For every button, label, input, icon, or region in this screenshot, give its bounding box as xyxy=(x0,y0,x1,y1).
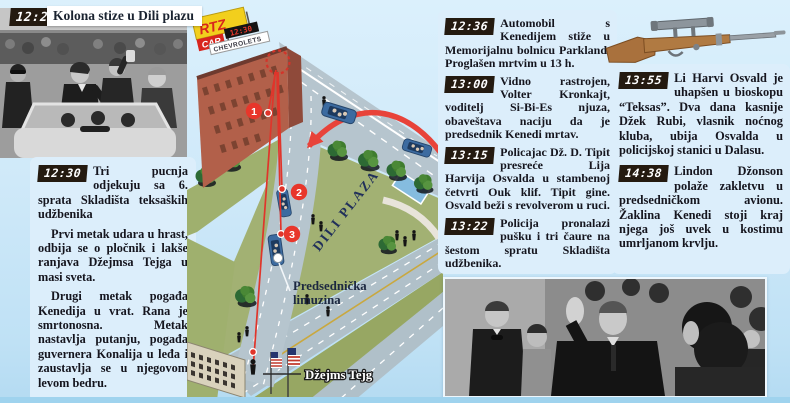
rifle-illustration xyxy=(604,2,790,66)
timestamp-badge-1230: 12:30 xyxy=(37,165,88,182)
limo-label-line1: Predsednička xyxy=(293,279,367,293)
headline: Kolona stize u Dili plazu xyxy=(47,6,202,26)
shots-lead-paragraph: 12:30Tri pucnja odjekuju sa 6. sprata Sk… xyxy=(38,164,188,222)
shot-marker-1: 1 xyxy=(251,106,257,118)
dealey-plaza-map: RTZ CAR 12:30 CHEVROLETS xyxy=(187,0,443,400)
lbj-oath-photo-art xyxy=(445,279,765,396)
timeline-entry-1300: 13:00Vidno rastrojen, Volter Kronkajt, v… xyxy=(445,75,610,142)
lbj-oath-photo xyxy=(443,277,767,398)
timeline-entry-1355: 13:55Li Harvi Osvald je uhapšen u biosko… xyxy=(619,71,783,157)
timeline-entry-1438: 14:38Lindon Džonson polaže zakletvu u pr… xyxy=(619,164,783,250)
timestamp-badge-1322: 13:22 xyxy=(444,218,495,235)
timeline-entry-1315: 13:15Policajac Dž. D. Tipit presreće Lij… xyxy=(445,146,610,213)
timeline-panel-mid: 12:36Automobil s Kenedijem stiže u Memor… xyxy=(438,10,617,274)
timestamp-badge-1438: 14:38 xyxy=(618,165,669,182)
shot-marker-3: 3 xyxy=(289,229,295,241)
motorcade-photo-art xyxy=(0,8,187,158)
timestamp-badge-1300: 13:00 xyxy=(444,76,495,93)
rifle-art xyxy=(604,2,790,66)
timestamp-badge-1315: 13:15 xyxy=(444,147,495,164)
shots-paragraph-4: Treći metak pogađa Kenedija u glavu. xyxy=(38,395,188,403)
shots-paragraph-2: Prvi metak udara u hrast, odbija se o pl… xyxy=(38,227,188,285)
limo-callout-anchor xyxy=(273,253,282,262)
timeline-entry-1236: 12:36Automobil s Kenedijem stiže u Memor… xyxy=(445,17,610,71)
shot-marker-2: 2 xyxy=(296,187,302,199)
shots-paragraph-3: Drugi metak pogađa Kenedija u vrat. Rana… xyxy=(38,289,188,390)
timeline-entry-1322: 13:22Policija pronalazi pušku i tri čaur… xyxy=(445,217,610,271)
timestamp-badge-1236: 12:36 xyxy=(444,18,495,35)
hertz-billboard: RTZ CAR 12:30 CHEVROLETS xyxy=(192,3,270,57)
limo-label-line2: limuzina xyxy=(293,293,341,307)
james-tague-figure xyxy=(250,359,256,374)
jfk-assassination-infographic: 12:29 Kolona stize u Dili plazu 12:30Tri… xyxy=(0,0,790,403)
timeline-panel-right: 13:55Li Harvi Osvald je uhapšen u biosko… xyxy=(612,64,790,274)
dealey-plaza-map-art: RTZ CAR 12:30 CHEVROLETS xyxy=(187,0,443,400)
shots-text-panel: 12:30Tri pucnja odjekuju sa 6. sprata Sk… xyxy=(30,157,196,403)
tague-label: Džejms Tejg xyxy=(305,368,373,382)
jfk-motorcade-photo xyxy=(0,8,187,158)
timestamp-badge-1355: 13:55 xyxy=(618,72,669,89)
